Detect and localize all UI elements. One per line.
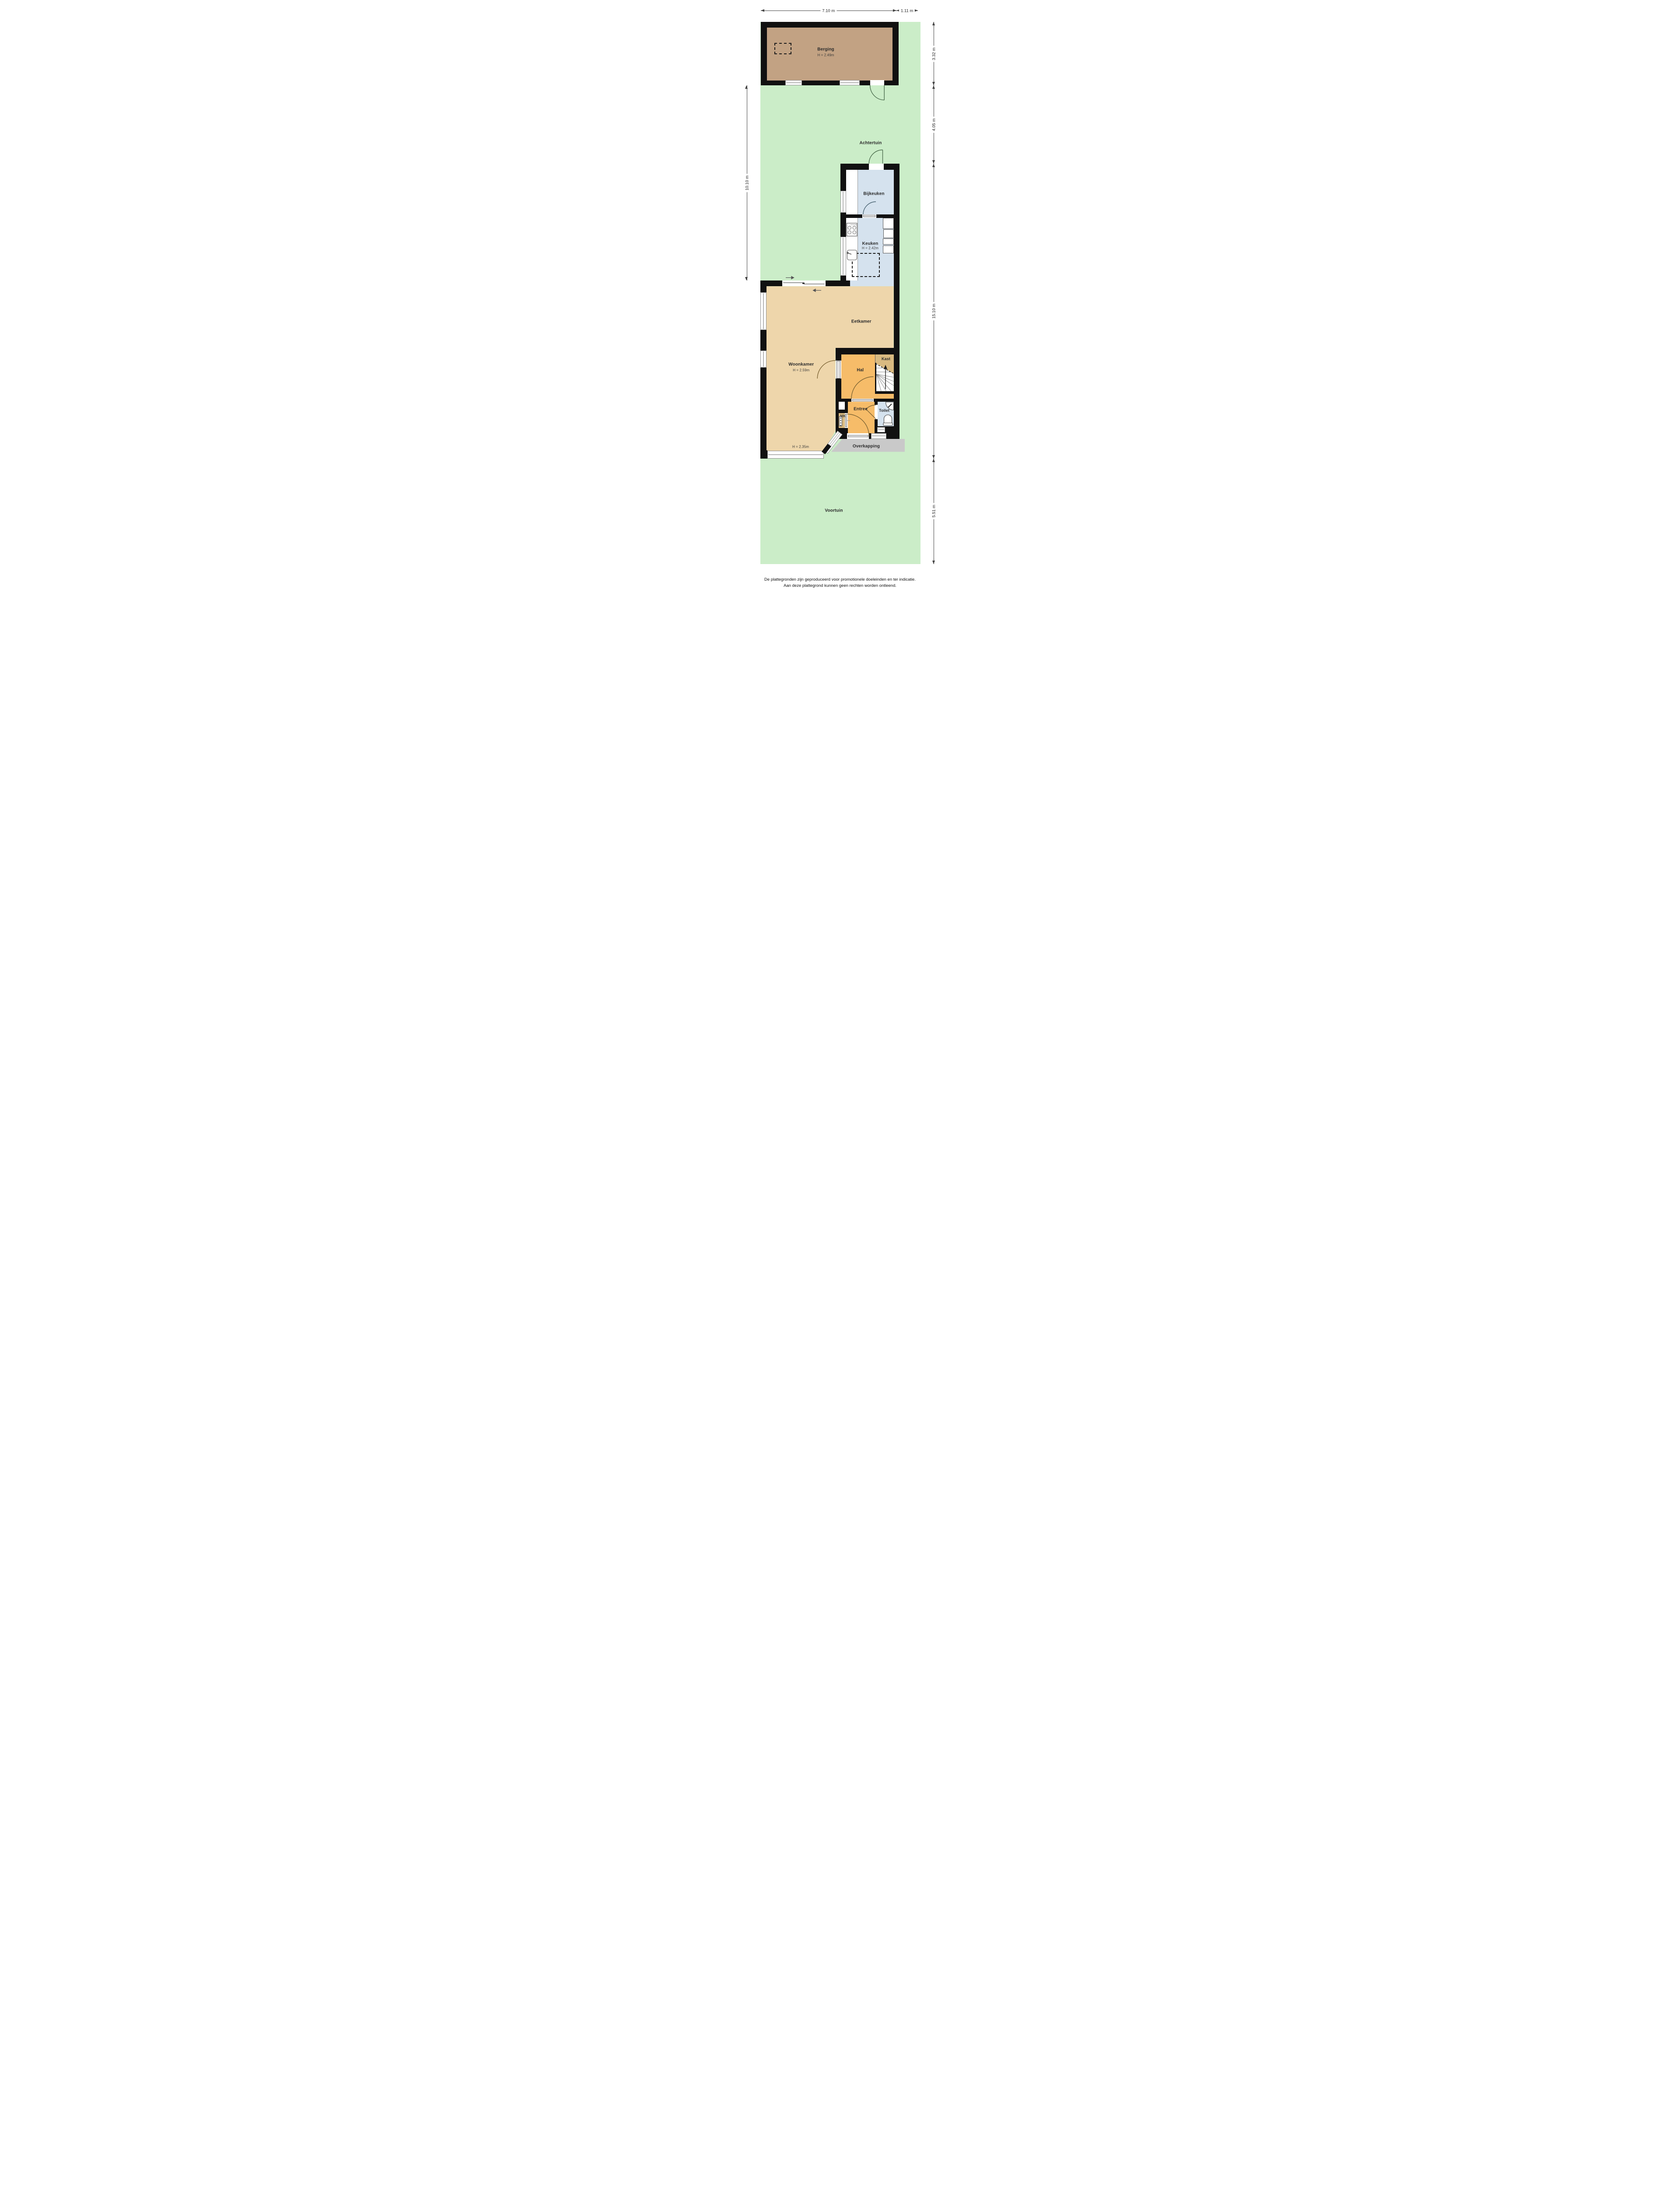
dim-right-2: 4.05 m [934, 85, 934, 164]
dim-right-3: 15.10 m [934, 164, 934, 459]
keuken-height-label: H = 2.42m [862, 246, 878, 250]
achtertuin-label: Achtertuin [860, 141, 882, 146]
woonkamer-height-label: H = 2.59m [793, 368, 809, 372]
kast-label: Kast [882, 357, 890, 361]
disclaimer-line-2: Aan deze plattegrond kunnen geen rechten… [764, 583, 916, 589]
berging-door-opening [870, 80, 885, 86]
voortuin-label: Voortuin [825, 508, 843, 513]
woonkamer-label: Woonkamer [788, 362, 814, 367]
bijkeuken-west-window [840, 191, 847, 213]
woonkamer-hal-door-leaf [836, 361, 840, 379]
dim-top-1: 7.10 m [761, 11, 896, 11]
sliding-door-meeting-stile [802, 283, 805, 284]
front-door-leaf [848, 435, 869, 438]
sliding-door-rail-2 [804, 284, 825, 284]
niche-right-wall [845, 402, 848, 414]
berging-skylight-outline [774, 43, 791, 54]
mk-bottom-wall [839, 428, 848, 433]
front-facade-window [871, 433, 886, 439]
toilet-south-window [877, 427, 885, 432]
eetkamer-label: Eetkamer [851, 319, 871, 324]
entree-west-wall [836, 399, 839, 433]
woonkamer-window-2 [760, 351, 767, 368]
keuken-cabinet-1 [883, 218, 894, 229]
keuken-label: Keuken [862, 242, 878, 246]
woonkamer-height2-label: H = 2.35m [792, 445, 809, 449]
dim-top-1-label: 7.10 m [820, 9, 836, 14]
keuken-cabinet-4 [883, 245, 894, 254]
eetkamer-hal-wall [836, 348, 900, 354]
dim-top-2: 1.11 m [896, 11, 918, 11]
keuken-skylight-outline [852, 253, 880, 277]
overkapping-label: Overkapping [853, 444, 880, 449]
bijkeuken-cupboard-strip [846, 170, 858, 215]
bay-corner-post-left [760, 450, 768, 459]
woonkamer-window-1 [760, 292, 767, 330]
toilet-door-opening [875, 405, 878, 419]
entree-label: Entree [854, 407, 868, 412]
dim-left-1: 10.10 m [747, 85, 747, 281]
dim-right-1-label: 3.32 m [932, 46, 937, 62]
toilet-label: Toilet [879, 408, 889, 413]
keuken-cabinet-2 [883, 229, 894, 238]
hal-label: Hal [857, 368, 864, 373]
dim-right-4-label: 5.51 m [932, 503, 937, 519]
hal-landing-floor [875, 394, 894, 399]
dim-right-1: 3.32 m [934, 22, 934, 85]
keuken-cabinet-3 [883, 238, 894, 245]
keuken-west-window [840, 237, 847, 276]
dim-left-1-label: 10.10 m [745, 174, 749, 192]
bijkeuken-keuken-door-leaf [863, 215, 876, 217]
disclaimer: De plattegronden zijn geproduceerd voor … [764, 577, 916, 589]
dim-right-3-label: 15.10 m [932, 302, 937, 320]
toilet-floor [878, 402, 894, 426]
niche-mk-wall [839, 410, 845, 413]
entree-floor [848, 402, 875, 434]
dim-right-2-label: 4.05 m [932, 116, 937, 133]
hal-floor [841, 354, 875, 399]
disclaimer-line-1: De plattegronden zijn geproduceerd voor … [764, 577, 916, 583]
stairs-left-wall [875, 363, 877, 392]
floor-plan-page: Berging H = 2.49m Achtertuin Bijkeuken K… [630, 0, 1050, 594]
berging-label: Berging [817, 47, 834, 52]
house-east-wall [894, 164, 900, 433]
bijkeuken-exterior-door-opening [869, 164, 884, 170]
stairs-bottom-wall [875, 391, 894, 394]
niche [839, 402, 845, 410]
bijkeuken-label: Bijkeuken [863, 192, 884, 196]
berging-window-2 [840, 80, 860, 86]
sliding-door-rail-1 [783, 282, 804, 283]
keuken-eetkamer-wall-stub [840, 281, 850, 287]
berging-window-1 [785, 80, 802, 86]
woonkamer-front-window [767, 451, 824, 459]
berging-height-label: H = 2.49m [817, 53, 834, 57]
dim-right-4: 5.51 m [934, 459, 934, 564]
mk-label: MK [840, 414, 846, 418]
hal-entree-door-leaf [852, 399, 873, 401]
dim-top-2-label: 1.11 m [899, 9, 915, 14]
